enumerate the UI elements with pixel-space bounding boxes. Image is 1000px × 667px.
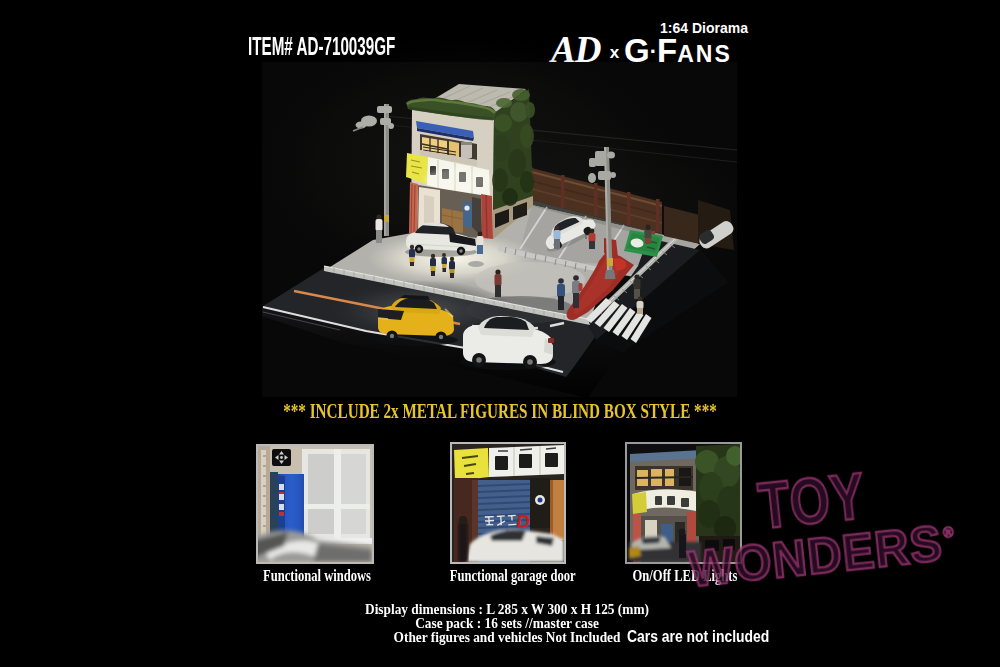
svg-text:D: D [516,511,531,533]
